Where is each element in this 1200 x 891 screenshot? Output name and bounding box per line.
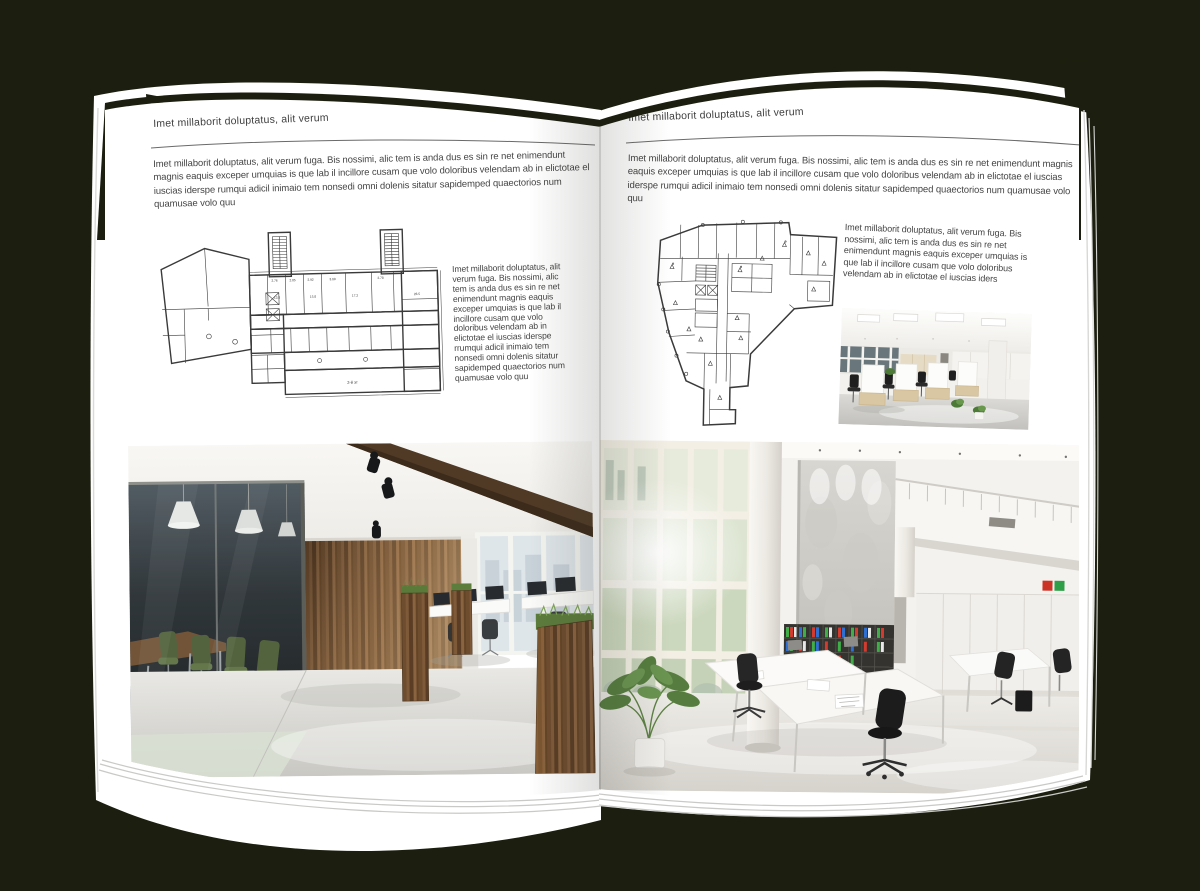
office-photo-small (838, 308, 1032, 430)
page-left: Imet millaborit doluptatus, alit verum I… (85, 88, 601, 815)
svg-text:28.5: 28.5 (414, 292, 421, 296)
svg-text:2.78: 2.78 (377, 276, 384, 280)
floor-plan-right (637, 212, 846, 431)
plan-symbols (668, 239, 827, 401)
svg-text:15.8: 15.8 (310, 295, 317, 299)
svg-text:2.76: 2.76 (271, 279, 278, 283)
svg-text:2-й эт: 2-й эт (347, 380, 358, 385)
right-header-rule (626, 130, 1080, 148)
office-photo-left (128, 441, 595, 778)
right-page-side-text: Imet millaborit doluptatus, alit verum f… (843, 222, 1039, 287)
svg-text:2.92: 2.92 (307, 278, 314, 282)
photo2-cabinets (915, 579, 1080, 697)
floor-plan-left: 2.76 2.85 2.92 3.09 2.78 13.8 15.8 17.2 … (148, 218, 453, 422)
svg-text:13.8: 13.8 (274, 296, 281, 300)
photo-floor (130, 667, 595, 778)
page-right: Imet millaborit doluptatus, alit verum I… (599, 62, 1080, 812)
plan-left-wing (161, 247, 252, 363)
left-page-intro: Imet millaborit doluptatus, alit verum f… (153, 148, 596, 212)
svg-text:3.09: 3.09 (329, 277, 336, 281)
svg-text:2.85: 2.85 (289, 278, 296, 282)
svg-text:17.2: 17.2 (352, 294, 359, 298)
right-page-intro: Imet millaborit doluptatus, alit verum f… (627, 152, 1080, 212)
book-mockup: Imet millaborit doluptatus, alit verum I… (0, 0, 1200, 891)
left-page-side-text: Imet millaborit doluptatus, alit verum f… (452, 262, 577, 384)
stair-core (695, 265, 718, 327)
office-photo-right (596, 440, 1082, 795)
left-page-header: Imet millaborit doluptatus, alit verum (153, 112, 329, 130)
